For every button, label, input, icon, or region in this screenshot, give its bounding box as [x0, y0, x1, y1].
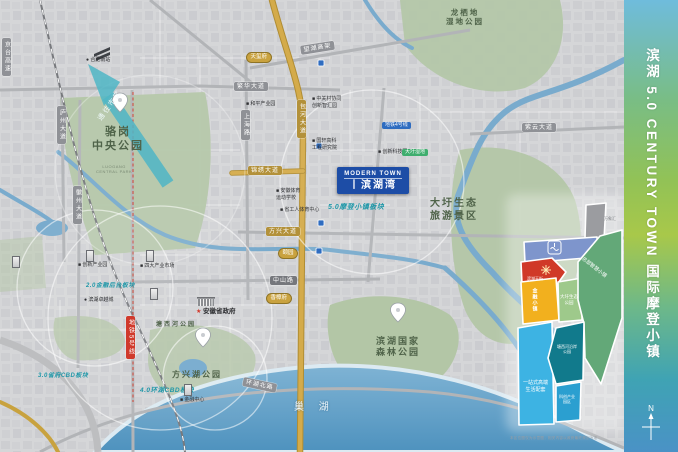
- metro-line5-badge: 地铁5号线: [126, 316, 135, 359]
- inset-parcel-yellow: [521, 278, 559, 324]
- inset-label-wanxianghui: 万象汇: [604, 216, 616, 221]
- road-label-ziyun: 紫云大道: [522, 123, 556, 132]
- poi-sports-school: ■ 安徽体育 运动学校: [276, 188, 300, 202]
- building-icon: [184, 384, 192, 396]
- park-label-tangxihe: 塘西河公园: [156, 322, 196, 330]
- road-label-fanhua: 繁华大道: [234, 82, 268, 91]
- inset-disclaimer: 本区位图仅为示意图，相关内容以政府最终规划为准: [510, 436, 597, 440]
- road-label-huizhou: 徽州大道: [73, 186, 82, 224]
- map-area: 繁华大道 紫云大道 望湖高架 锦绣大道 方兴大道 中山路 环湖北路 庐州大道 徽…: [0, 0, 624, 452]
- poi-workers: ■ 省工人体育中心: [280, 207, 319, 214]
- park-label-fangxinghu: 方兴湖公园: [172, 370, 222, 380]
- building-icon: [86, 250, 94, 262]
- inset-label-jinrong: 金融小镇: [531, 288, 538, 312]
- sector-label-2: 2.0金融后台板块: [86, 283, 135, 291]
- inset-label-life: 一站式高端 生活配套: [523, 380, 548, 393]
- inset-label-dawei-park: 大圩生态 公园: [560, 294, 578, 306]
- poi-industry: ■ 创新产业园: [78, 262, 107, 269]
- project-logo: MODERN TOWN 丨滨湖湾: [337, 167, 409, 194]
- park-label-dawei: 大圩生态 旅游景区: [430, 198, 478, 223]
- building-icon: [146, 250, 154, 262]
- binhu-map-page: 繁华大道 紫云大道 望湖高架 锦绣大道 方兴大道 中山路 环湖北路 庐州大道 徽…: [0, 0, 678, 452]
- compass-n-label: N: [648, 404, 654, 413]
- poi-zgc: ■ 中关村协同 创新智汇园: [312, 96, 341, 110]
- road-label-shanghai: 上海路: [241, 110, 250, 140]
- poi-market: ■ 四大产业市场: [140, 263, 174, 270]
- metro-badge: 地铁4号线: [382, 122, 411, 129]
- tram-badge: 大圩湿地: [402, 149, 428, 156]
- park-label-forest: 滨湖国家 森林公园: [376, 336, 420, 359]
- starburst-icon: [541, 265, 551, 275]
- badge-tianxifu: 天玺府: [246, 52, 272, 63]
- park-label-longqidi: 龙栖地 湿地公园: [446, 8, 484, 27]
- sector-label-5: 5.0摩登小镇板块: [328, 204, 384, 213]
- lake-label: 巢 湖: [294, 402, 335, 415]
- badge-xiangzhangfu: 香樟府: [266, 293, 292, 304]
- government-building-icon: [197, 297, 215, 306]
- inset-label-tianjie: 滨湖天街: [527, 276, 543, 281]
- badge-yiyuan: 颐园: [278, 248, 298, 259]
- title-sidebar: 滨湖 5.0 CENTURY TOWN 国际摩登小镇 N: [624, 0, 678, 452]
- logo-divider: [344, 178, 402, 179]
- project-name-en: MODERN TOWN: [344, 171, 402, 177]
- building-icon: [12, 256, 20, 268]
- road-label-fangxing: 方兴大道: [266, 227, 300, 236]
- project-name-cn: 丨滨湖湾: [349, 181, 397, 191]
- inset-label-kechuang: 科创产业 园区: [559, 394, 575, 404]
- building-icon: [150, 288, 158, 300]
- poi-government: 安徽省政府: [203, 308, 236, 317]
- road-label-jinxiu: 锦绣大道: [248, 166, 282, 175]
- compass-icon: N: [639, 402, 663, 442]
- poi-zhuoyue: ● 滨湖卓越城: [84, 297, 113, 304]
- road-label-baohe: 包河大道: [297, 100, 306, 138]
- road-label-jingtai: 京台高速: [2, 38, 11, 76]
- gov-star-icon: ★: [196, 309, 201, 315]
- park-label-luogang-en: LUOGANG CENTRAL PARK: [96, 164, 132, 174]
- inset-label-tangxihe: 塘西河沿岸 公园: [557, 344, 577, 354]
- poi-finance: ■ 金融中心: [180, 397, 204, 404]
- poi-guoxuan: ■ 国轩高科 工程研究院: [312, 138, 337, 152]
- park-label-luogang: 骆岗 中央公园: [92, 126, 144, 154]
- inset-parcel-skyblue: [518, 322, 554, 425]
- poi-south-station: ● 合肥南站: [86, 57, 110, 64]
- road-label-luzhou: 庐州大道: [57, 106, 66, 144]
- poi-heping: ■ 和平产业园: [246, 101, 275, 108]
- page-title: 滨湖 5.0 CENTURY TOWN 国际摩登小镇: [641, 48, 661, 360]
- sector-label-3: 3.0省府CBD板块: [38, 373, 88, 381]
- road-label-zhongshan: 中山路: [270, 276, 297, 285]
